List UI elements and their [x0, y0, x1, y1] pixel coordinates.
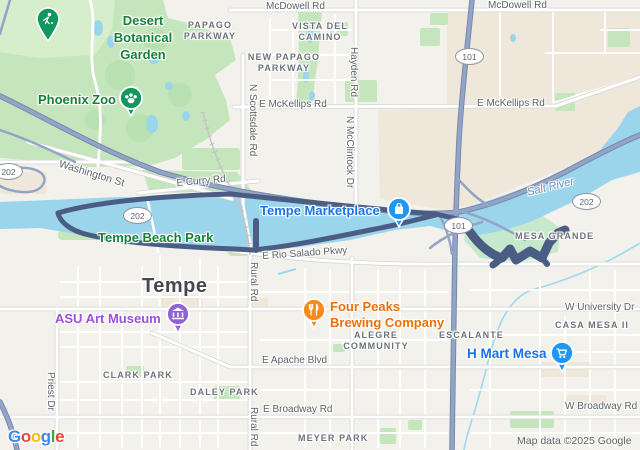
poi-label-h-mart-mesa[interactable]: H Mart Mesa [467, 346, 547, 361]
poi-label-phoenix-zoo[interactable]: Phoenix Zoo [38, 92, 116, 107]
logo-letter: g [41, 427, 51, 446]
city-label-tempe: Tempe [142, 275, 207, 298]
road-label-hayden-rd: Hayden Rd [348, 47, 359, 97]
route-shield-101: 101 [455, 48, 484, 65]
road-label-apache-blvd: E Apache Blvd [262, 355, 327, 366]
shopping-cart-icon [548, 340, 576, 376]
asu-art-museum-pin[interactable] [164, 301, 192, 337]
area-label-daley-park: DALEY PARK [190, 387, 259, 398]
logo-letter: o [21, 427, 31, 446]
road-label-mcclintock-dr: N McClintock Dr [344, 116, 355, 188]
logo-letter: G [8, 427, 21, 446]
logo-letter: o [31, 427, 41, 446]
museum-icon [164, 301, 192, 337]
area-label-papago-parkway: PAPAGO PARKWAY [172, 20, 248, 42]
road-label-mckellips: E McKellips Rd [477, 98, 545, 109]
golfer-icon [34, 7, 62, 43]
area-label-vista-del-camino: VISTA DEL CAMINO [283, 21, 357, 43]
poi-label-line: Botanical [103, 29, 183, 46]
area-label-casa-mesa: CASA MESA II [555, 320, 629, 331]
shield-label: 101 [462, 52, 476, 62]
road-label-scottsdale-rd: N Scottsdale Rd [247, 84, 258, 156]
paw-icon [117, 85, 145, 121]
road-label-university-dr: W University Dr [565, 302, 634, 313]
logo-letter: e [55, 427, 64, 446]
route-shield-202: 202 [572, 193, 601, 210]
area-label-mesa-grande: MESA GRANDE [515, 231, 594, 242]
area-label-line: COMMUNITY [336, 341, 416, 352]
phoenix-zoo-pin[interactable] [117, 85, 145, 121]
area-label-clark-park: CLARK PARK [103, 370, 173, 381]
road-label-rural-rd: Rural Rd [248, 407, 259, 446]
area-label-escalante: ESCALANTE [439, 330, 504, 341]
road-label-mcdowell: McDowell Rd [266, 1, 325, 12]
road-label-mckellips: E McKellips Rd [259, 99, 327, 110]
road-label-broadway-rd: W Broadway Rd [565, 401, 637, 412]
restaurant-icon [300, 297, 328, 333]
area-label-line: PARKWAY [172, 31, 248, 42]
poi-label-line: Four Peaks [330, 299, 444, 315]
area-label-line: CAMINO [283, 32, 357, 43]
golf-course-pin[interactable] [34, 7, 62, 43]
poi-label-line: Brewing Company [330, 315, 444, 331]
road-label-priest-dr: Priest Dr [45, 372, 56, 411]
shopping-bag-icon [385, 196, 413, 232]
route-shield-202: 202 [123, 207, 152, 224]
poi-label-asu-art-museum[interactable]: ASU Art Museum [55, 311, 161, 326]
area-label-alegre-community: ALEGRE COMMUNITY [336, 330, 416, 352]
poi-label-four-peaks[interactable]: Four Peaks Brewing Company [330, 299, 444, 331]
road-label-rural-rd: Rural Rd [248, 262, 259, 301]
area-label-meyer-park: MEYER PARK [298, 433, 368, 444]
area-label-line: PAPAGO [172, 20, 248, 31]
poi-label-desert-botanical-garden[interactable]: Desert Botanical Garden [103, 12, 183, 63]
area-label-line: PARKWAY [239, 63, 329, 74]
area-label-line: VISTA DEL [283, 21, 357, 32]
shield-label: 202 [579, 197, 593, 207]
shield-label: 101 [451, 221, 465, 231]
route-shield-101: 101 [444, 217, 473, 234]
area-label-line: ALEGRE [336, 330, 416, 341]
map-attribution: Map data ©2025 Google [517, 435, 632, 447]
h-mart-pin[interactable] [548, 340, 576, 376]
poi-label-tempe-beach-park[interactable]: Tempe Beach Park [98, 230, 213, 245]
shield-label: 202 [1, 167, 15, 177]
poi-label-tempe-marketplace[interactable]: Tempe Marketplace [260, 203, 380, 218]
area-label-line: NEW PAPAGO [239, 52, 329, 63]
google-map-viewport[interactable]: 202 202 202 101 101 McDowell Rd McDowell… [0, 0, 640, 450]
shield-label: 202 [130, 211, 144, 221]
four-peaks-pin[interactable] [300, 297, 328, 333]
tempe-marketplace-pin[interactable] [385, 196, 413, 232]
google-logo[interactable]: Google [8, 427, 64, 447]
road-label-broadway-rd: E Broadway Rd [263, 404, 332, 415]
poi-label-line: Garden [103, 46, 183, 63]
road-label-mcdowell: McDowell Rd [488, 0, 547, 11]
poi-label-line: Desert [103, 12, 183, 29]
area-label-new-papago-parkway: NEW PAPAGO PARKWAY [239, 52, 329, 74]
